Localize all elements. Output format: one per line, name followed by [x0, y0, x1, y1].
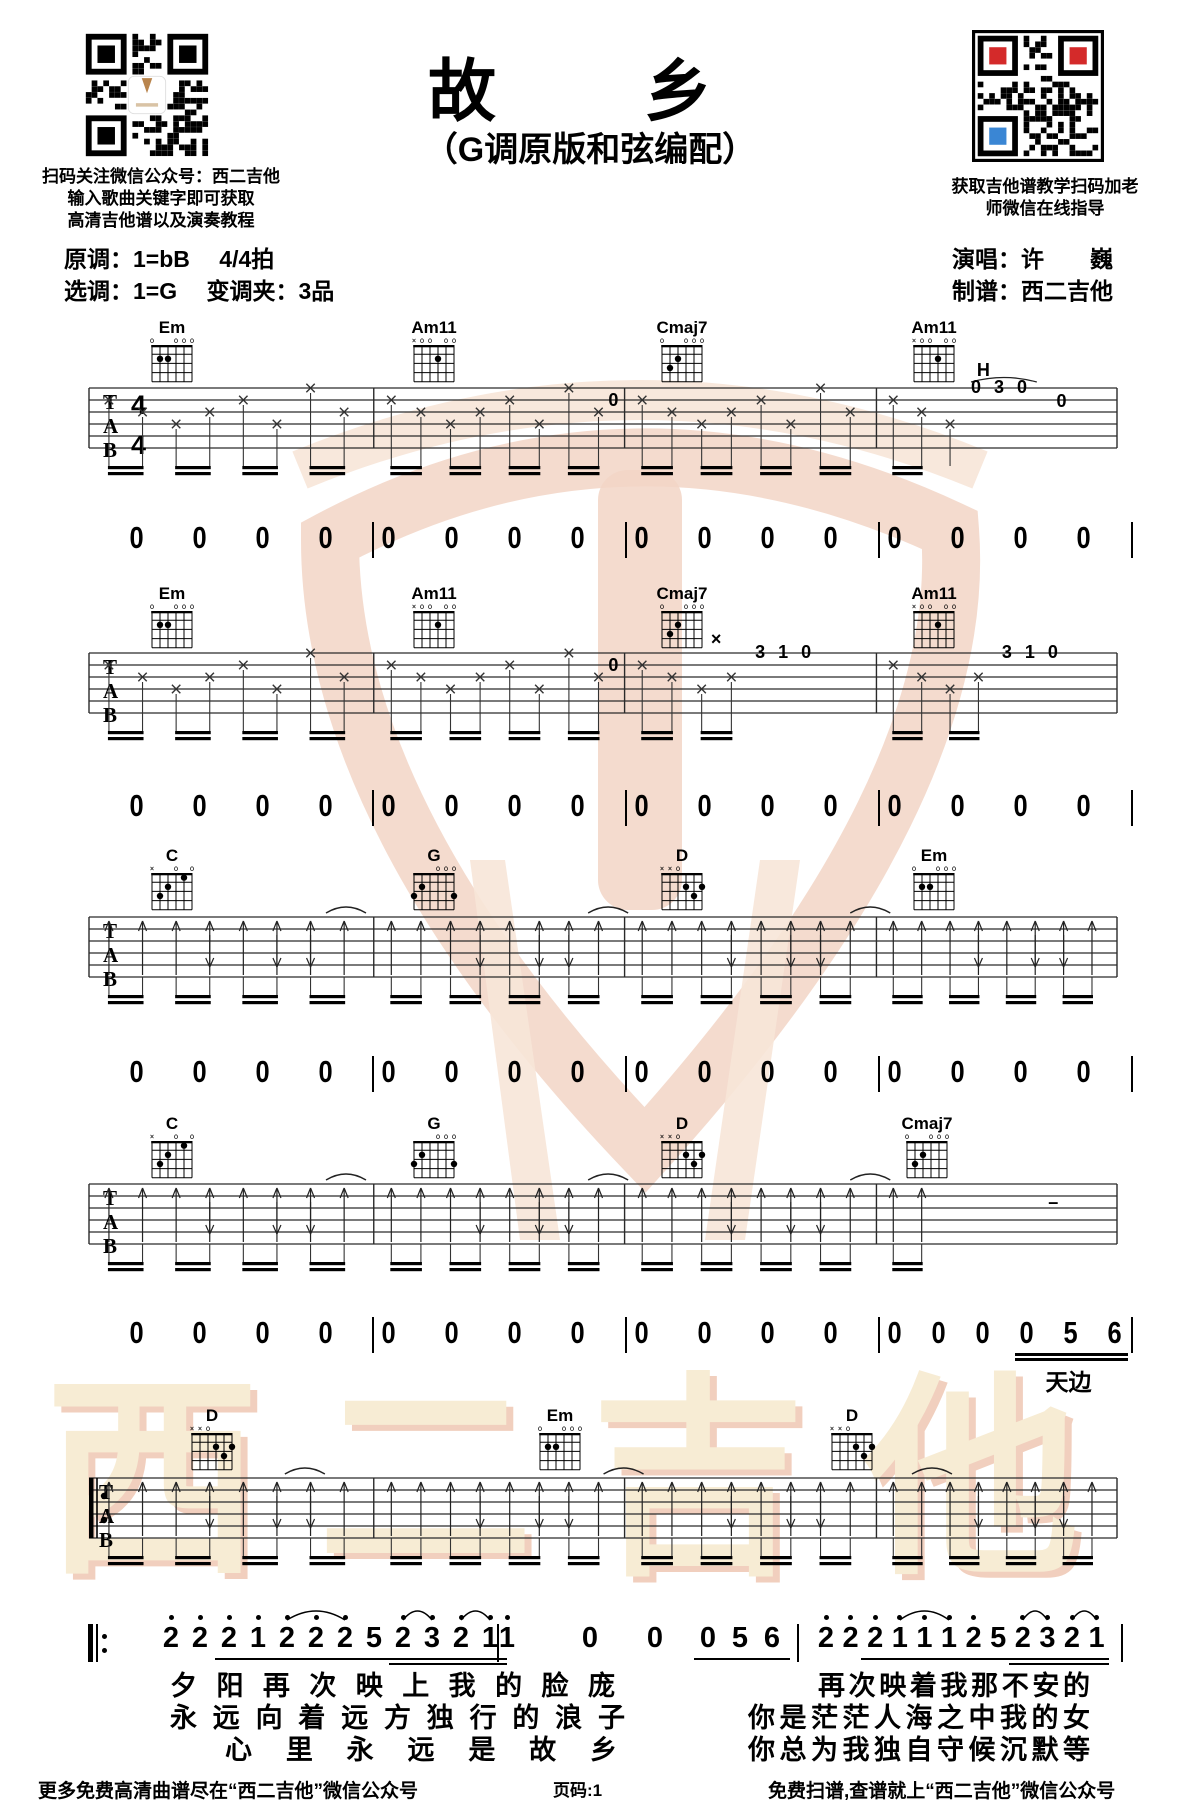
jianpu-note: 2	[187, 1622, 213, 1655]
count-beat: 0	[130, 1054, 144, 1090]
svg-text:B: B	[103, 438, 117, 462]
lyric-char: 安	[1032, 1672, 1059, 1700]
jianpu-underline	[476, 1658, 507, 1660]
jianpu-underline	[935, 1658, 962, 1660]
tab-annotation: 3 1 0	[1002, 642, 1062, 662]
count-beat: 0	[571, 788, 585, 824]
svg-text:×: ×	[830, 1424, 835, 1433]
svg-text:o: o	[952, 864, 957, 873]
svg-text:o: o	[444, 336, 449, 345]
jianpu-underline	[886, 1658, 913, 1660]
count-beat: 0	[130, 788, 144, 824]
svg-text:A: A	[103, 1210, 119, 1234]
jianpu-note: 1	[887, 1622, 913, 1655]
jianpu-barline	[797, 1624, 799, 1662]
lyric-char: 夕	[170, 1672, 197, 1700]
svg-text:o: o	[700, 602, 705, 611]
jianpu-underline	[861, 1658, 888, 1660]
svg-text:o: o	[944, 864, 949, 873]
lyric-char: 的	[1032, 1704, 1059, 1732]
tab-staff: TAB	[85, 1450, 1125, 1584]
count-beat: 0	[445, 1054, 459, 1090]
jianpu-underline	[1083, 1658, 1110, 1660]
svg-text:4: 4	[131, 430, 146, 460]
count-beat: 0	[130, 1315, 144, 1351]
count-beat: 0	[193, 1054, 207, 1090]
jianpu-octave-dot	[198, 1615, 203, 1620]
svg-text:×: ×	[150, 1132, 155, 1141]
count-beat: 0	[635, 520, 649, 556]
chord-name: D	[646, 1116, 718, 1132]
count-barline	[878, 1317, 880, 1353]
svg-text:o: o	[578, 1424, 583, 1433]
tab-system-4: TAB–	[85, 1156, 1125, 1295]
svg-text:×: ×	[912, 336, 917, 345]
lyric-char: 向	[256, 1704, 283, 1732]
jianpu-note: 5	[727, 1622, 753, 1655]
jianpu-octave-dot	[1094, 1615, 1099, 1620]
svg-text:o: o	[928, 336, 933, 345]
jianpu-note: 1	[245, 1622, 271, 1655]
jianpu-underline	[302, 1658, 333, 1660]
lyric-char: 你	[748, 1736, 775, 1764]
count-beat: 0	[193, 520, 207, 556]
jianpu-note: 1	[911, 1622, 937, 1655]
count-beat: 6	[1108, 1315, 1122, 1351]
svg-text:B: B	[103, 1234, 117, 1258]
lyric-char: 故	[529, 1736, 556, 1764]
count-beat: 0	[761, 1054, 775, 1090]
jianpu-underline	[418, 1663, 449, 1665]
svg-text:o: o	[182, 602, 187, 611]
chord-name: G	[398, 848, 470, 864]
svg-text:o: o	[684, 602, 689, 611]
chord-name: Em	[524, 1408, 596, 1424]
jianpu-underline	[960, 1658, 987, 1660]
lyric-char: 海	[906, 1704, 933, 1732]
lyric-char: 那	[971, 1672, 998, 1700]
count-beat: 0	[1077, 520, 1091, 556]
count-beat: 0	[319, 1054, 333, 1090]
jianpu-repeat-dot	[102, 1648, 107, 1653]
count-beat: 0	[932, 1315, 946, 1351]
svg-text:×: ×	[912, 602, 917, 611]
count-beat: 0	[761, 520, 775, 556]
count-beat: 0	[888, 1315, 902, 1351]
svg-text:o: o	[952, 602, 957, 611]
lyric-char: 行	[470, 1704, 497, 1732]
svg-text:×: ×	[412, 336, 417, 345]
jianpu-note: 2	[274, 1622, 300, 1655]
lyric-char: 我	[843, 1736, 870, 1764]
count-beat: 0	[382, 1054, 396, 1090]
count-beat: 0	[256, 788, 270, 824]
count-beat: 0	[1020, 1315, 1034, 1351]
count-beat: 0	[1014, 788, 1028, 824]
svg-text:×: ×	[660, 1132, 665, 1141]
jianpu-underline	[215, 1658, 246, 1660]
count-barline	[878, 1056, 880, 1092]
jianpu-underline	[244, 1658, 275, 1660]
jianpu-octave-dot	[824, 1615, 829, 1620]
svg-text:A: A	[99, 1504, 115, 1528]
jianpu-arcs	[0, 1596, 1180, 1626]
count-barline	[878, 522, 880, 558]
count-beat: 0	[571, 1054, 585, 1090]
score-area: EmooooAm11×ooooCmaj7ooooAm11×ooooTAB44H0…	[0, 0, 1180, 1810]
jianpu-underline	[360, 1658, 391, 1660]
jianpu-note: 2	[332, 1622, 358, 1655]
lyric-char: 心	[225, 1736, 252, 1764]
count-beat: 0	[508, 520, 522, 556]
count-lyric: 天边	[1046, 1363, 1092, 1397]
lyric-char: 永	[170, 1704, 197, 1732]
count-beat: 0	[761, 788, 775, 824]
tab-annotation: 0	[608, 390, 622, 410]
lyric-char: 独	[874, 1736, 901, 1764]
lyric-char: 默	[1032, 1736, 1059, 1764]
count-barline	[372, 1056, 374, 1092]
tab-staff: TAB–	[85, 1156, 1125, 1290]
svg-text:o: o	[436, 864, 441, 873]
lyric-line-5: 你是茫茫人海之中我的女	[748, 1704, 1090, 1732]
lyric-char: 永	[347, 1736, 374, 1764]
jianpu-underline	[331, 1658, 362, 1660]
svg-text:o: o	[944, 336, 949, 345]
count-beat: 0	[824, 788, 838, 824]
tab-system-5: TAB	[85, 1450, 1125, 1589]
lyric-char: 自	[906, 1736, 933, 1764]
jianpu-underline	[1058, 1658, 1085, 1660]
jianpu-octave-dot	[848, 1615, 853, 1620]
jianpu-note: 2	[216, 1622, 242, 1655]
count-beat: 0	[445, 520, 459, 556]
svg-text:o: o	[905, 1132, 910, 1141]
count-barline	[372, 1317, 374, 1353]
lyric-char: 的	[1063, 1672, 1090, 1700]
svg-text:o: o	[174, 602, 179, 611]
lyric-char: 庞	[588, 1672, 615, 1700]
lyric-char: 浪	[555, 1704, 582, 1732]
jianpu-octave-dot	[314, 1615, 319, 1620]
svg-text:o: o	[444, 602, 449, 611]
svg-text:×: ×	[668, 864, 673, 873]
jianpu-underline	[447, 1663, 478, 1665]
svg-text:o: o	[937, 1132, 942, 1141]
tab-annotation: 3 1 0	[755, 642, 815, 662]
jianpu-note: 5	[361, 1622, 387, 1655]
svg-text:B: B	[103, 703, 117, 727]
count-beat: 0	[635, 788, 649, 824]
lyric-char: 为	[811, 1736, 838, 1764]
count-beat: 5	[1064, 1315, 1078, 1351]
svg-text:A: A	[103, 414, 119, 438]
svg-text:×: ×	[660, 864, 665, 873]
jianpu-note: 2	[1010, 1622, 1036, 1655]
count-beat: 0	[761, 1315, 775, 1351]
jianpu-underline	[1033, 1663, 1060, 1665]
svg-text:×: ×	[838, 1424, 843, 1433]
chord-name: Am11	[398, 586, 470, 602]
chord-name: Am11	[898, 320, 970, 336]
lyric-char: 上	[402, 1672, 429, 1700]
chord-name: Em	[898, 848, 970, 864]
jianpu-octave-dot	[401, 1615, 406, 1620]
count-beat: 0	[951, 1054, 965, 1090]
jianpu-octave-dot	[505, 1615, 510, 1620]
jianpu-underline	[273, 1658, 304, 1660]
jianpu-note: 2	[390, 1622, 416, 1655]
lyric-char: 是	[780, 1704, 807, 1732]
jianpu-note: 1	[1084, 1622, 1110, 1655]
svg-text:o: o	[692, 336, 697, 345]
chord-name: Cmaj7	[891, 1116, 963, 1132]
jianpu-underline	[1083, 1663, 1110, 1665]
lyric-line-6: 你总为我独自守候沉默等	[748, 1736, 1090, 1764]
count-barline	[1131, 1317, 1133, 1353]
jianpu-underline	[1009, 1663, 1036, 1665]
jianpu-note: 2	[158, 1622, 184, 1655]
sheet-page: 西二吉他 故 乡 （G调原版和弦编配） 扫码关注微信公众号：西二吉他 输入歌曲关…	[0, 0, 1180, 1810]
count-row-1: 0000000000000000	[0, 520, 1180, 566]
chord-name: Cmaj7	[646, 586, 718, 602]
lyric-line-3: 心里永远是故乡	[225, 1736, 617, 1764]
lyric-char: 远	[341, 1704, 368, 1732]
svg-text:A: A	[103, 679, 119, 703]
lyric-char: 总	[780, 1736, 807, 1764]
count-beat: 0	[256, 1315, 270, 1351]
lyric-char: 子	[598, 1704, 625, 1732]
lyric-char: 女	[1063, 1704, 1090, 1732]
lyric-char: 我	[449, 1672, 476, 1700]
count-row-3: 0000000000000000	[0, 1054, 1180, 1100]
svg-text:o: o	[952, 336, 957, 345]
lyric-char: 的	[512, 1704, 539, 1732]
jianpu-underline	[418, 1658, 449, 1660]
count-beat: 0	[824, 520, 838, 556]
count-beat: 0	[824, 1054, 838, 1090]
svg-text:o: o	[444, 864, 449, 873]
count-beat: 0	[256, 520, 270, 556]
count-beat: 0	[698, 520, 712, 556]
lyric-char: 里	[286, 1736, 313, 1764]
jianpu-octave-dot	[897, 1615, 902, 1620]
count-row-2: 0000000000000000	[0, 788, 1180, 834]
jianpu-octave-dot	[169, 1615, 174, 1620]
jianpu-octave-dot	[922, 1615, 927, 1620]
jianpu-octave-dot	[285, 1615, 290, 1620]
svg-text:o: o	[150, 602, 155, 611]
chord-name: Em	[136, 586, 208, 602]
chord-name: C	[136, 848, 208, 864]
count-barline	[625, 790, 627, 826]
lyric-char: 我	[1000, 1704, 1027, 1732]
lyric-char: 映	[356, 1672, 383, 1700]
jianpu-note: 3	[1034, 1622, 1060, 1655]
jianpu-octave-dot	[430, 1615, 435, 1620]
count-beat: 0	[888, 1054, 902, 1090]
svg-text:o: o	[676, 1132, 681, 1141]
chord-name: Am11	[398, 320, 470, 336]
lyric-char: 之	[937, 1704, 964, 1732]
chord-name: G	[398, 1116, 470, 1132]
lyric-char: 不	[1002, 1672, 1029, 1700]
svg-text:o: o	[945, 1132, 950, 1141]
count-beat: 0	[1077, 788, 1091, 824]
lyric-char: 我	[941, 1672, 968, 1700]
jianpu-note: 1	[936, 1622, 962, 1655]
svg-text:o: o	[684, 336, 689, 345]
svg-text:o: o	[660, 602, 665, 611]
jianpu-note: 2	[303, 1622, 329, 1655]
jianpu-note: 6	[759, 1622, 785, 1655]
svg-text:o: o	[452, 602, 457, 611]
jianpu-octave-dot	[1045, 1615, 1050, 1620]
chord-name: C	[136, 1116, 208, 1132]
jianpu-note: 3	[419, 1622, 445, 1655]
count-beat: 0	[256, 1054, 270, 1090]
count-row-4: 000000000000000056天边	[0, 1315, 1180, 1361]
lyric-char: 着	[910, 1672, 937, 1700]
count-barline	[625, 1317, 627, 1353]
count-beat: 0	[382, 520, 396, 556]
count-barline	[372, 522, 374, 558]
jianpu-note: 2	[1059, 1622, 1085, 1655]
count-beat: 0	[571, 1315, 585, 1351]
svg-text:o: o	[452, 1132, 457, 1141]
lyric-char: 中	[969, 1704, 996, 1732]
count-beat: 0	[319, 1315, 333, 1351]
count-beat: 0	[508, 1315, 522, 1351]
count-barline	[878, 790, 880, 826]
svg-text:o: o	[570, 1424, 575, 1433]
lyric-char: 茫	[843, 1704, 870, 1732]
lyric-char: 茫	[811, 1704, 838, 1732]
count-beat: 0	[635, 1315, 649, 1351]
tab-system-1: TAB44H0 3 000	[85, 360, 1125, 499]
svg-text:o: o	[206, 1424, 211, 1433]
tab-staff: TAB	[85, 889, 1125, 1023]
count-underline	[1015, 1358, 1128, 1361]
jianpu-note: 2	[862, 1622, 888, 1655]
tab-staff: TAB3 1 03 1 00×	[85, 625, 1125, 759]
count-barline	[1131, 522, 1133, 558]
tab-annotation: 0	[608, 655, 622, 675]
count-beat: 0	[888, 788, 902, 824]
jianpu-octave-dot	[343, 1615, 348, 1620]
count-beat: 0	[130, 520, 144, 556]
chord-name: Em	[136, 320, 208, 336]
svg-text:o: o	[920, 336, 925, 345]
count-beat: 0	[698, 1315, 712, 1351]
svg-text:o: o	[190, 602, 195, 611]
svg-text:o: o	[562, 1424, 567, 1433]
svg-text:o: o	[700, 336, 705, 345]
lyric-char: 次	[309, 1672, 336, 1700]
jianpu-repeat-thin	[96, 1624, 98, 1662]
jianpu-note: 1	[477, 1622, 503, 1655]
svg-text:×: ×	[198, 1424, 203, 1433]
jianpu-underline	[476, 1663, 507, 1665]
count-beat: 0	[824, 1315, 838, 1351]
count-beat: 0	[698, 1054, 712, 1090]
svg-text:o: o	[190, 1132, 195, 1141]
count-beat: 0	[951, 788, 965, 824]
svg-text:B: B	[103, 967, 117, 991]
jianpu-note: 0	[577, 1622, 603, 1655]
count-beat: 0	[382, 1315, 396, 1351]
svg-text:o: o	[928, 602, 933, 611]
jianpu-underline	[984, 1658, 1011, 1660]
lyric-char: 等	[1063, 1736, 1090, 1764]
svg-text:o: o	[538, 1424, 543, 1433]
lyric-char: 远	[213, 1704, 240, 1732]
count-beat: 0	[571, 520, 585, 556]
svg-text:o: o	[428, 336, 433, 345]
svg-text:o: o	[444, 1132, 449, 1141]
count-beat: 0	[1077, 1054, 1091, 1090]
jianpu-octave-dot	[1020, 1615, 1025, 1620]
count-beat: 0	[319, 520, 333, 556]
svg-text:o: o	[929, 1132, 934, 1141]
jianpu-note: 2	[838, 1622, 864, 1655]
count-beat: 0	[445, 788, 459, 824]
lyric-char: 人	[874, 1704, 901, 1732]
jianpu-underline	[1009, 1658, 1036, 1660]
count-beat: 0	[319, 788, 333, 824]
tab-staff: TAB44H0 3 000	[85, 360, 1125, 494]
chord-name: D	[646, 848, 718, 864]
svg-text:o: o	[676, 864, 681, 873]
lyric-char: 次	[849, 1672, 876, 1700]
jianpu-underline	[389, 1658, 420, 1660]
svg-text:o: o	[420, 336, 425, 345]
lyric-char: 映	[879, 1672, 906, 1700]
jianpu-octave-dot	[971, 1615, 976, 1620]
svg-text:o: o	[420, 602, 425, 611]
jianpu-underline	[1058, 1663, 1085, 1665]
svg-text:o: o	[190, 864, 195, 873]
jianpu-repeat-thick	[88, 1624, 93, 1662]
svg-text:o: o	[692, 602, 697, 611]
tab-annotation: 0	[1057, 391, 1071, 411]
svg-text:o: o	[452, 864, 457, 873]
jianpu-note: 2	[448, 1622, 474, 1655]
svg-text:×: ×	[668, 1132, 673, 1141]
svg-text:o: o	[174, 1132, 179, 1141]
svg-text:A: A	[103, 943, 119, 967]
jianpu-repeat-dot	[102, 1634, 107, 1639]
jianpu-octave-dot	[947, 1615, 952, 1620]
jianpu-octave-dot	[1070, 1615, 1075, 1620]
count-beat: 0	[382, 788, 396, 824]
count-beat: 0	[445, 1315, 459, 1351]
svg-text:o: o	[174, 336, 179, 345]
svg-text:B: B	[99, 1528, 113, 1552]
tab-annotation: ×	[711, 629, 726, 649]
lyric-char: 脸	[542, 1672, 569, 1700]
chord-name: D	[816, 1408, 888, 1424]
jianpu-note: 0	[642, 1622, 668, 1655]
jianpu-underline	[694, 1658, 726, 1660]
tab-system-2: TAB3 1 03 1 00×	[85, 625, 1125, 764]
jianpu-octave-dot	[256, 1615, 261, 1620]
svg-text:o: o	[428, 602, 433, 611]
svg-text:o: o	[150, 336, 155, 345]
jianpu-underline	[726, 1658, 758, 1660]
count-barline	[1131, 790, 1133, 826]
svg-text:×: ×	[190, 1424, 195, 1433]
